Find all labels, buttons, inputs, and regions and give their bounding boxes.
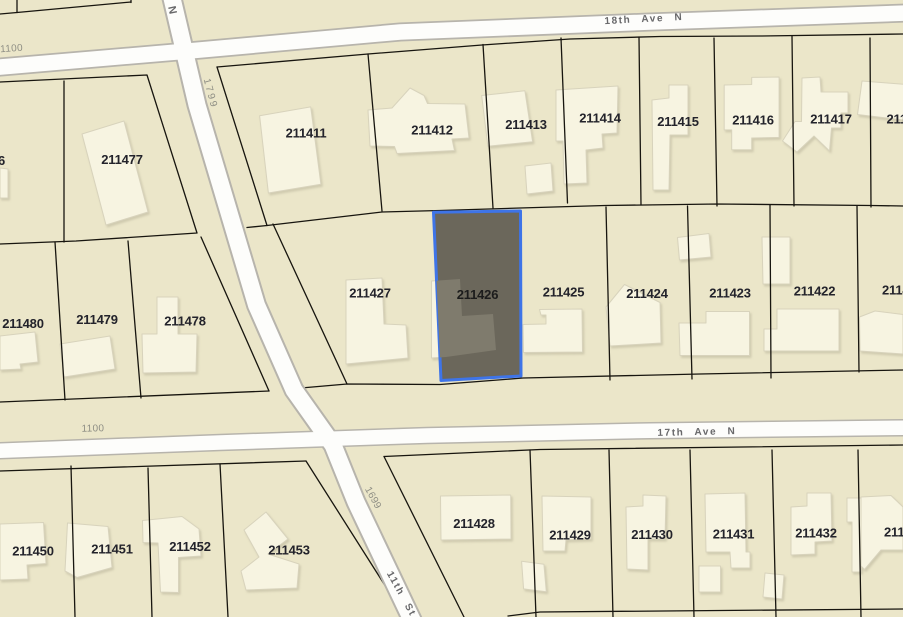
svg-text:211431: 211431 [713, 527, 754, 542]
svg-text:211429: 211429 [549, 528, 590, 543]
svg-text:211427: 211427 [349, 286, 390, 301]
svg-text:211413: 211413 [505, 117, 546, 132]
svg-text:211480: 211480 [2, 316, 43, 331]
svg-text:1100: 1100 [81, 423, 104, 435]
svg-text:211430: 211430 [631, 527, 672, 542]
svg-text:6: 6 [0, 153, 5, 168]
svg-text:1100: 1100 [0, 43, 23, 56]
svg-text:211432: 211432 [795, 526, 836, 541]
svg-text:211412: 211412 [411, 123, 452, 138]
svg-text:211426: 211426 [457, 287, 498, 302]
svg-text:211416: 211416 [732, 113, 773, 128]
svg-text:211478: 211478 [164, 314, 205, 329]
svg-text:211423: 211423 [709, 286, 750, 301]
svg-text:211477: 211477 [101, 152, 142, 167]
svg-text:211451: 211451 [91, 542, 132, 557]
svg-text:211453: 211453 [268, 543, 309, 558]
svg-text:211414: 211414 [579, 111, 621, 126]
svg-text:211433: 211433 [884, 525, 903, 540]
svg-text:211452: 211452 [169, 539, 210, 554]
svg-text:211422: 211422 [794, 284, 835, 299]
svg-text:211411: 211411 [286, 126, 327, 141]
svg-text:211425: 211425 [543, 285, 584, 300]
svg-text:211418: 211418 [887, 112, 903, 127]
svg-text:17th Ave N: 17th Ave N [657, 426, 736, 439]
svg-text:211417: 211417 [810, 112, 851, 127]
svg-text:211424: 211424 [626, 286, 668, 301]
svg-text:211479: 211479 [76, 312, 117, 327]
svg-text:211450: 211450 [12, 544, 53, 559]
svg-text:211415: 211415 [657, 114, 698, 129]
svg-text:211428: 211428 [453, 516, 494, 531]
svg-text:211421: 211421 [882, 283, 903, 298]
